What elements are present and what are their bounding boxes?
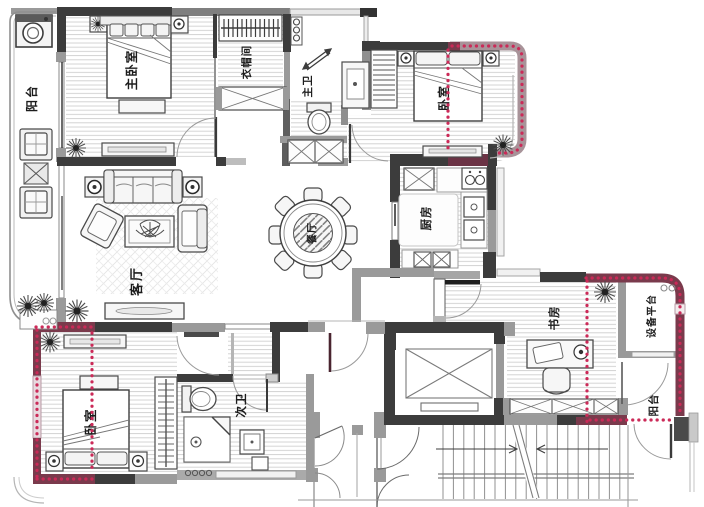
svg-text:主卧室: 主卧室 xyxy=(124,50,139,91)
svg-text:书房: 书房 xyxy=(547,306,561,331)
svg-text:设备平台: 设备平台 xyxy=(645,294,658,338)
svg-text:餐厅: 餐厅 xyxy=(306,222,319,245)
svg-text:阳台: 阳台 xyxy=(24,84,39,112)
svg-text:次卫: 次卫 xyxy=(234,393,248,418)
svg-text:客厅: 客厅 xyxy=(129,266,144,296)
svg-text:衣帽间: 衣帽间 xyxy=(240,45,253,80)
svg-text:主卫: 主卫 xyxy=(301,75,314,98)
svg-text:厨房: 厨房 xyxy=(419,206,433,231)
